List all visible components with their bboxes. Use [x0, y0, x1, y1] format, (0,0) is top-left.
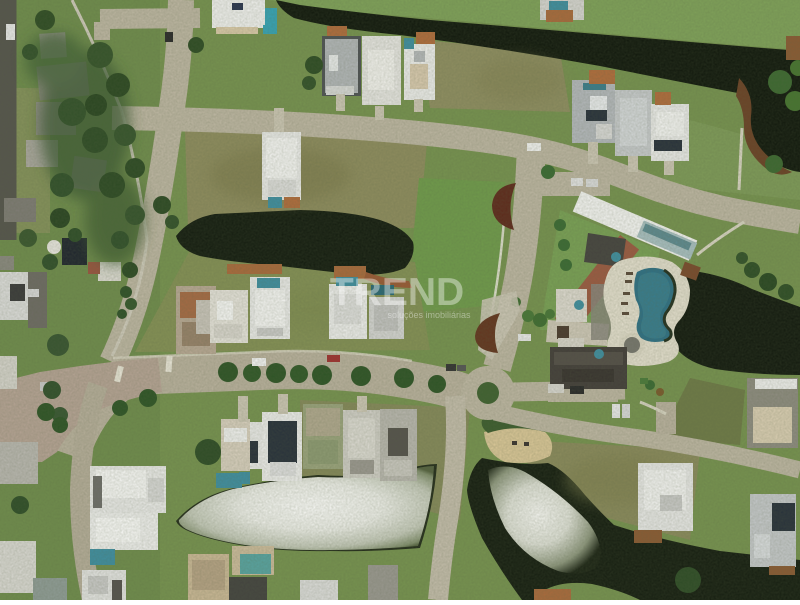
svg-text:TREND: TREND — [330, 271, 464, 314]
svg-text:soluções imobiliárias: soluções imobiliárias — [387, 310, 471, 320]
